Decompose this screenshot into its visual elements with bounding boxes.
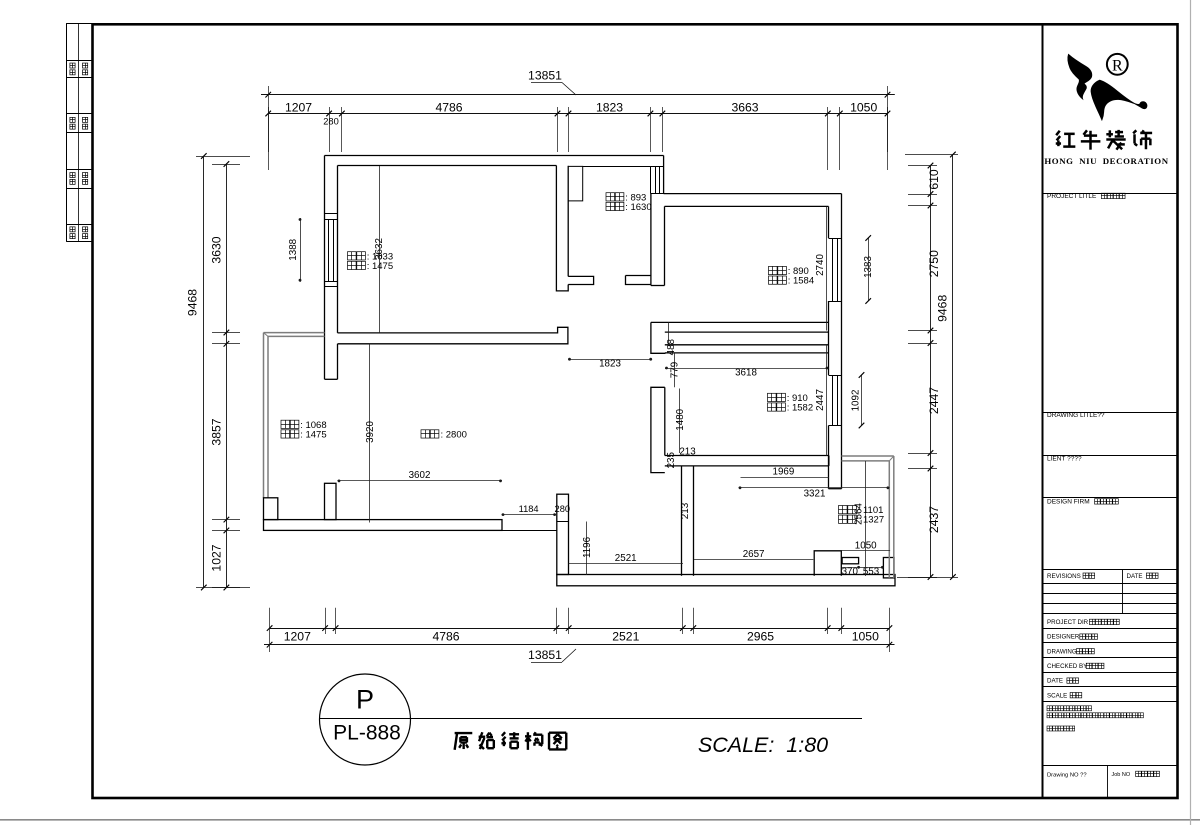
svg-text:610: 610	[927, 169, 941, 190]
svg-text:: 1630: : 1630	[625, 202, 651, 213]
svg-text:1207: 1207	[284, 629, 311, 643]
svg-text:1027: 1027	[210, 544, 224, 571]
svg-text:3920: 3920	[365, 421, 376, 443]
svg-text:REVISIONS: REVISIONS	[1047, 573, 1081, 580]
svg-text:1480: 1480	[675, 408, 686, 430]
svg-text:2447: 2447	[815, 389, 826, 411]
svg-text:LIENT ????: LIENT ????	[1047, 456, 1082, 463]
svg-text:3602: 3602	[409, 470, 431, 481]
svg-text:: 1475: : 1475	[300, 429, 326, 440]
svg-text:1092: 1092	[850, 390, 861, 412]
svg-text:SCALE: SCALE	[1047, 692, 1067, 699]
svg-text:13851: 13851	[528, 648, 562, 662]
svg-text:DATE: DATE	[1047, 678, 1063, 685]
svg-text:4786: 4786	[435, 100, 462, 114]
svg-text:1823: 1823	[599, 359, 621, 370]
svg-text:3630: 3630	[210, 236, 224, 263]
svg-text:3663: 3663	[731, 100, 758, 114]
svg-text:DESIGNER: DESIGNER	[1047, 634, 1080, 641]
svg-text:R: R	[1112, 57, 1123, 74]
svg-text:4786: 4786	[432, 629, 459, 643]
svg-text:1050: 1050	[850, 100, 877, 114]
svg-text:2437: 2437	[927, 506, 941, 533]
svg-text:: 1584: : 1584	[788, 276, 814, 287]
svg-text:Drawing NO ??: Drawing NO ??	[1047, 773, 1087, 779]
svg-text:P: P	[356, 685, 374, 715]
svg-text:9468: 9468	[186, 289, 200, 316]
svg-text:3618: 3618	[735, 367, 757, 378]
svg-text:PROJECT DIR: PROJECT DIR	[1047, 619, 1089, 626]
svg-text:280: 280	[323, 117, 339, 127]
svg-text:2521: 2521	[615, 553, 637, 564]
svg-text:DRAWING: DRAWING	[1047, 648, 1077, 655]
svg-text:3857: 3857	[210, 418, 224, 445]
svg-text:2521: 2521	[612, 629, 639, 643]
svg-text:3321: 3321	[804, 489, 826, 500]
svg-text:PROJECT LITLE: PROJECT LITLE	[1047, 193, 1097, 200]
svg-text:SCALE: 1:80: SCALE: 1:80	[698, 733, 828, 757]
svg-text:1207: 1207	[285, 100, 312, 114]
svg-text:1969: 1969	[773, 467, 795, 478]
svg-text:: 1475: : 1475	[367, 261, 393, 272]
svg-text:HONG NIU DECORATION: HONG NIU DECORATION	[1044, 156, 1168, 166]
svg-text:280: 280	[555, 504, 571, 514]
svg-text:1050: 1050	[855, 540, 877, 551]
svg-text:DRAWING LITLE??: DRAWING LITLE??	[1047, 412, 1105, 419]
svg-text:9468: 9468	[936, 295, 950, 322]
svg-text:1184: 1184	[519, 504, 539, 514]
svg-text:2657: 2657	[743, 549, 765, 560]
svg-text:2965: 2965	[747, 629, 774, 643]
svg-text:1823: 1823	[596, 100, 623, 114]
svg-text:213: 213	[680, 502, 691, 519]
svg-text:DESIGN FIRM: DESIGN FIRM	[1047, 499, 1090, 506]
svg-text:779: 779	[669, 362, 680, 378]
svg-text:Job NO: Job NO	[1112, 772, 1131, 778]
svg-text:: 1582: : 1582	[787, 403, 813, 414]
svg-text:488: 488	[666, 338, 677, 355]
svg-text:1383: 1383	[863, 256, 874, 278]
svg-text:PL-888: PL-888	[333, 722, 401, 745]
svg-text:1050: 1050	[852, 629, 879, 643]
svg-text:2447: 2447	[927, 387, 941, 414]
svg-text:: 2800: : 2800	[441, 429, 467, 440]
svg-text:DATE: DATE	[1127, 573, 1143, 580]
svg-text:235: 235	[666, 451, 677, 468]
svg-text:13851: 13851	[528, 69, 562, 83]
svg-text:: 1327: : 1327	[858, 515, 884, 526]
svg-text:1196: 1196	[582, 536, 593, 558]
svg-text:1388: 1388	[288, 238, 299, 260]
svg-text:2740: 2740	[815, 254, 826, 276]
svg-text:213: 213	[679, 447, 696, 458]
svg-text:2750: 2750	[927, 250, 941, 277]
svg-text:CHECKED BY: CHECKED BY	[1047, 663, 1087, 670]
svg-text:370: 370	[842, 567, 859, 578]
